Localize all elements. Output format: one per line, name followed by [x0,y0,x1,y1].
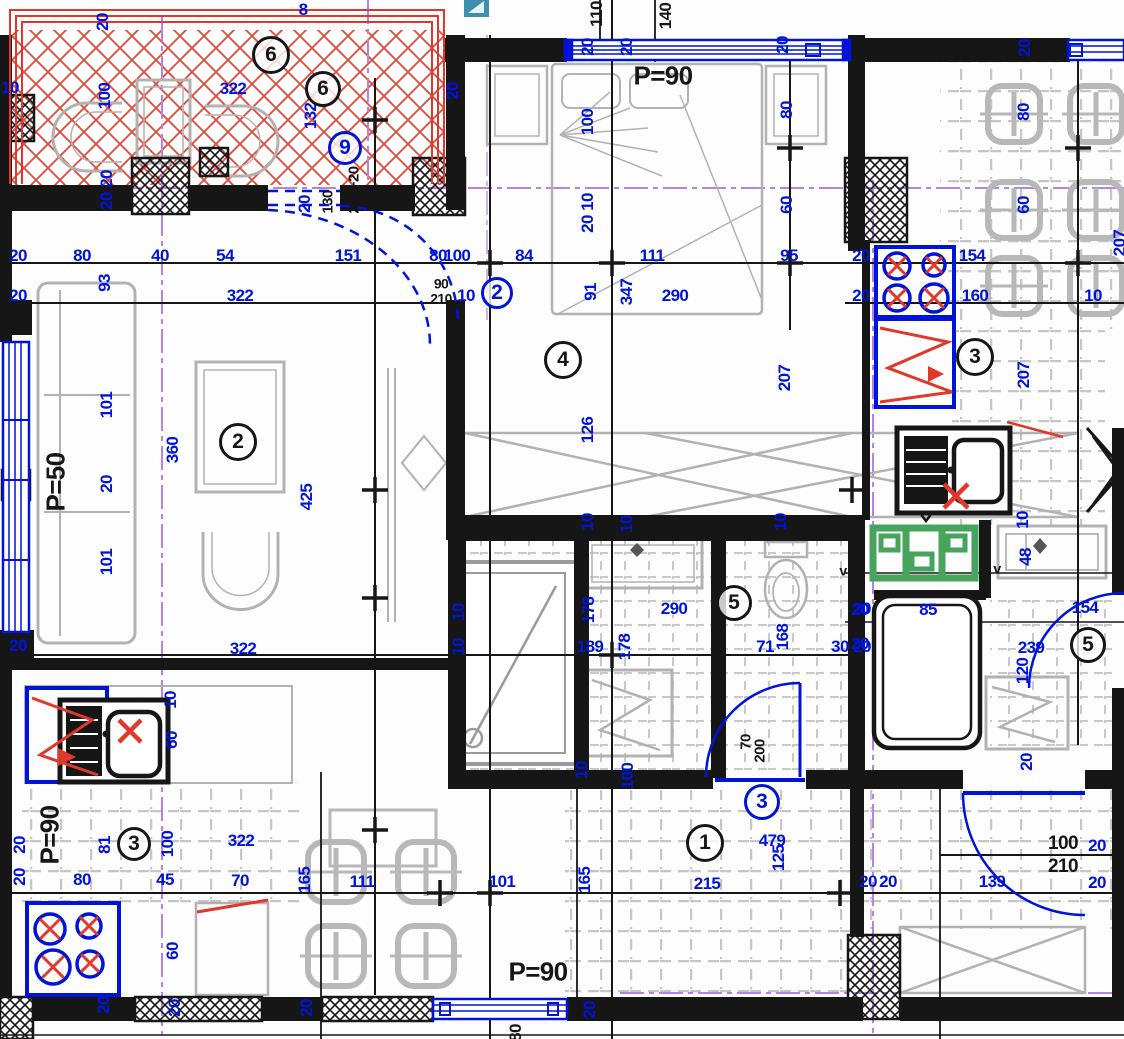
wardrobe-entry [900,927,1085,993]
window-balcony [1068,40,1124,60]
bathtub [874,596,980,748]
fridge1-zigzag [880,328,952,402]
entry-tiles [864,790,1124,930]
window-bottom [433,999,567,1019]
nightstand-left [487,66,547,144]
double-bed [552,64,762,315]
floor-plan-canvas[interactable] [0,0,1124,1039]
kitchen-sink-left [60,700,168,782]
overlay-cursor-icon[interactable] [464,0,489,17]
green-module [873,528,975,578]
stove-kitchen2 [27,903,119,995]
kitchen-sink-right [897,428,1010,521]
washbasin-right-top [998,526,1106,578]
tv-board [388,368,395,622]
window-living [3,342,29,632]
tv [402,436,446,490]
armchair [203,532,278,609]
dining-set [300,810,462,986]
nightstand-right [766,66,826,144]
sofa [38,283,135,643]
floor-plan-screenshot: 2083221001322010202020130220+20208040541… [0,0,1124,1039]
window-bedroom [565,40,850,60]
shower [452,562,576,764]
kitchen2-counter [196,903,268,995]
coffee-table [196,362,284,492]
